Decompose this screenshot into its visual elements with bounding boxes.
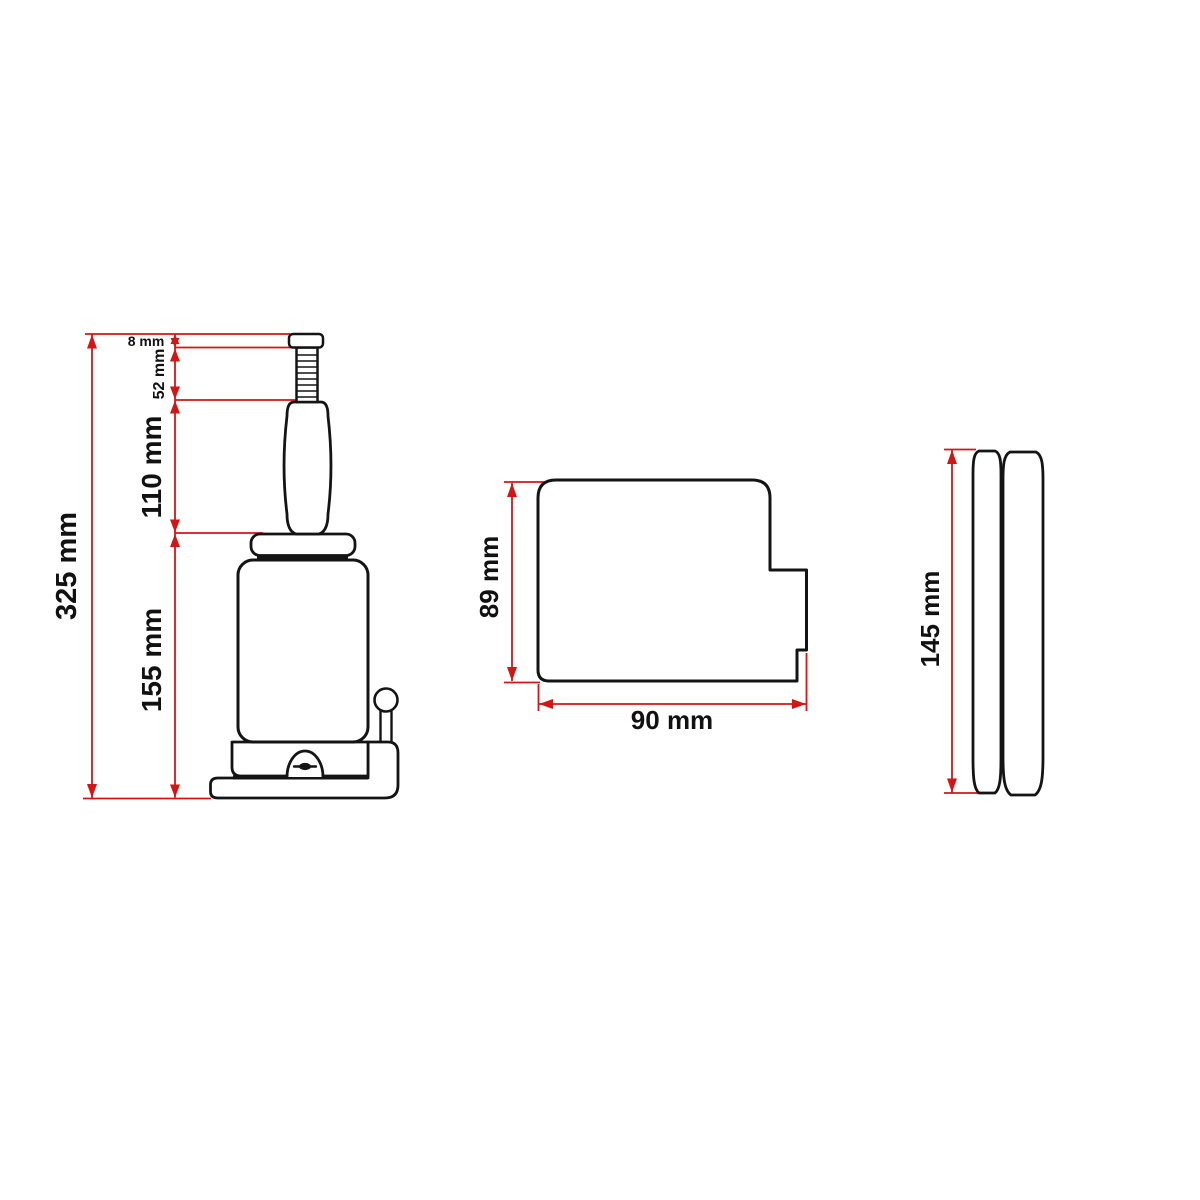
- jack-saddle-plate: [251, 534, 355, 556]
- base-plate-top-outline: [538, 480, 807, 681]
- dimension-label-handle-length: 145 mm: [915, 571, 945, 668]
- bottle-jack-outline: [211, 334, 399, 798]
- side-view-labels: 325 mm 8 mm 52 mm 110 mm 155 mm: [51, 333, 168, 712]
- arrow-down-icon: [170, 785, 180, 798]
- arrow-down-icon: [947, 779, 957, 793]
- arrow-up-icon: [170, 349, 180, 362]
- technical-drawing: 325 mm 8 mm 52 mm 110 mm 155 mm 89 mm 90…: [0, 0, 1200, 1200]
- arrow-down-icon: [170, 387, 180, 400]
- dimension-label-base-depth: 89 mm: [474, 536, 504, 618]
- jack-lift-ram: [284, 402, 331, 534]
- arrow-up-icon: [947, 450, 957, 464]
- dimension-label-body: 155 mm: [136, 608, 167, 712]
- dimension-label-screw: 52 mm: [151, 349, 168, 400]
- dimension-label-ram: 110 mm: [136, 416, 167, 519]
- arrow-down-icon: [87, 784, 97, 798]
- jack-body-cylinder: [238, 560, 368, 742]
- arrow-left-icon: [539, 699, 553, 709]
- handle-section-2: [1003, 452, 1043, 795]
- arrow-up-icon: [87, 335, 97, 349]
- arrow-down-icon: [507, 667, 517, 681]
- handle-view: 145 mm: [915, 450, 1043, 796]
- release-valve-knob-icon: [299, 763, 311, 770]
- dimension-label-base-width: 90 mm: [631, 705, 713, 735]
- dimension-label-cap: 8 mm: [128, 333, 165, 349]
- dimension-label-total-height: 325 mm: [51, 512, 83, 620]
- handle-section-1: [973, 451, 1001, 793]
- arrow-right-icon: [792, 699, 806, 709]
- base-top-view: 89 mm 90 mm: [474, 480, 807, 735]
- pump-socket-ball: [375, 689, 398, 712]
- screw-cap: [289, 334, 323, 348]
- arrow-up-icon: [170, 401, 180, 414]
- side-view: 325 mm 8 mm 52 mm 110 mm 155 mm: [51, 333, 398, 799]
- arrow-down-icon: [170, 520, 180, 533]
- arrow-up-icon: [507, 483, 517, 497]
- arrow-up-icon: [170, 534, 180, 547]
